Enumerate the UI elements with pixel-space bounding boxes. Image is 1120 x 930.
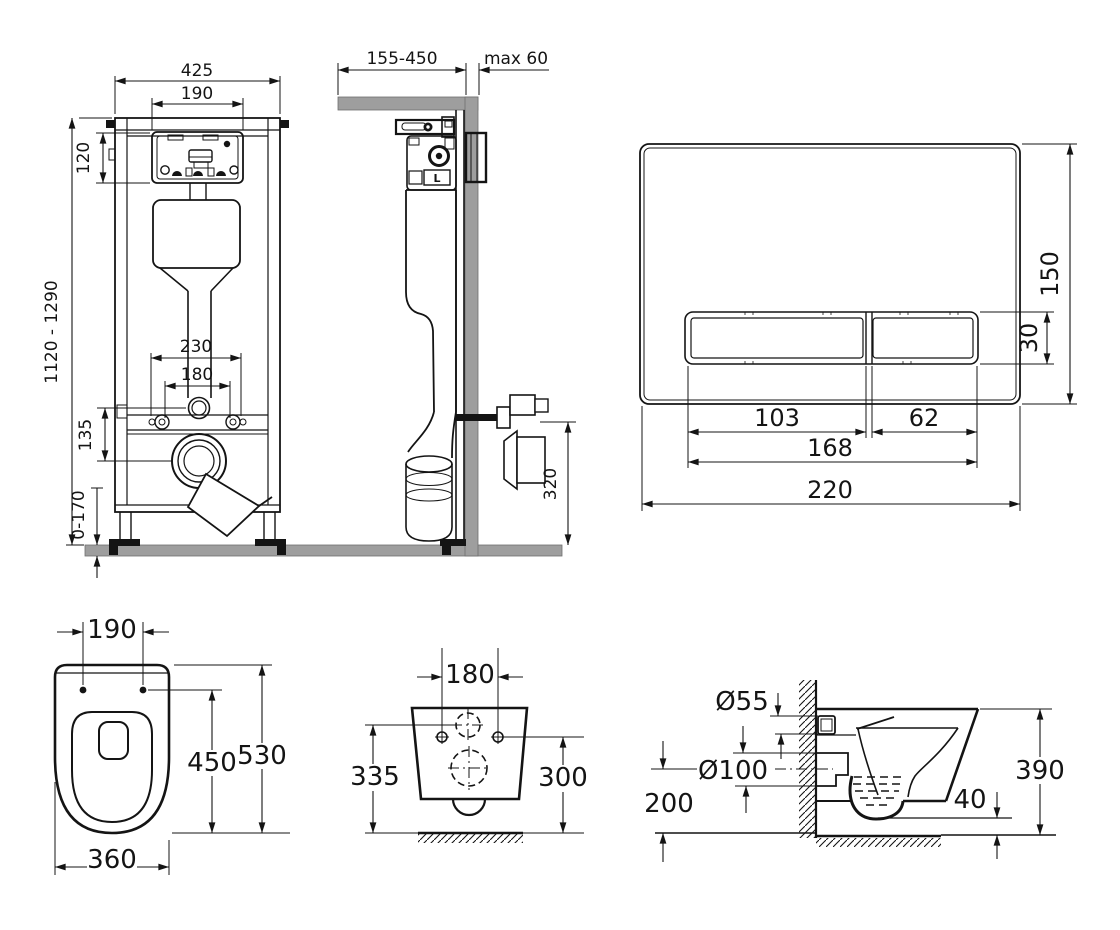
inlet-pipe <box>456 414 497 421</box>
dim-bottom-gap: 40 <box>953 785 986 815</box>
top-fixing-slab <box>338 97 478 110</box>
dim-outlet-diameter: Ø100 <box>698 756 768 786</box>
dim-bowl-width: 360 <box>87 845 137 875</box>
dim-frame-width: 425 <box>181 61 213 81</box>
fixing-bolts <box>149 415 246 429</box>
outlet-connector <box>504 431 517 489</box>
dim-outlet-axis-height: 200 <box>644 789 694 819</box>
dim-opening-height: 120 <box>74 142 94 174</box>
flush-buttons <box>685 312 978 364</box>
seat-fixing-left <box>80 687 87 694</box>
service-opening <box>152 132 243 183</box>
frame-outline <box>115 118 280 512</box>
dim-finish-max: max 60 <box>484 49 548 69</box>
frame-rail <box>456 110 464 540</box>
drain-trap <box>406 456 452 541</box>
dim-fixing-outer: 230 <box>180 337 212 357</box>
dim-rear-fixing-width: 180 <box>445 660 495 690</box>
dim-bowl-fixing-width: 190 <box>87 615 137 645</box>
dim-fixing-inner: 180 <box>181 365 213 385</box>
bowl-top-view: 190 450 530 360 <box>55 615 290 875</box>
dim-inlet-diameter: Ø55 <box>715 687 769 717</box>
top-bracket <box>396 117 454 137</box>
dim-frame-height-range: 1120 - 1290 <box>42 280 62 383</box>
wall-anchor-right <box>280 120 289 128</box>
dim-button-height: 30 <box>1015 323 1043 354</box>
flush-inlet-hole <box>99 722 128 759</box>
dim-connection-height: 320 <box>541 468 561 500</box>
valve-mark-label: L <box>433 172 440 185</box>
technical-drawing-page: 425 190 1120 - 1290 120 230 180 135 0-17… <box>0 0 1120 930</box>
cistern-side: L <box>406 136 456 458</box>
flush-plate <box>640 144 1020 404</box>
water-level <box>853 777 902 805</box>
frame-side-view: L 155-450 <box>338 49 576 556</box>
dim-outlet-offset: 135 <box>76 419 96 451</box>
dim-buttons-width: 168 <box>807 434 853 462</box>
waste-outlet <box>172 434 272 536</box>
outlet-hole-rear <box>448 746 490 790</box>
bowl-rear-view: 180 335 300 <box>350 648 589 843</box>
frame-side-foot <box>440 539 466 546</box>
flush-plate-dimensions: 150 30 103 62 168 220 <box>642 144 1077 511</box>
bowl-top-dimensions: 190 450 530 360 <box>55 615 290 875</box>
dim-rear-height-left: 335 <box>350 762 400 792</box>
dim-bowl-depth: 530 <box>237 741 287 771</box>
dim-plate-height: 150 <box>1036 251 1064 297</box>
dim-button-large-width: 103 <box>754 404 800 432</box>
wall-anchor-left <box>106 120 115 128</box>
dim-button-small-width: 62 <box>909 404 940 432</box>
dim-rear-height-right: 300 <box>538 763 588 793</box>
bowl-side-view: Ø55 Ø100 200 40 390 <box>644 680 1065 862</box>
dim-plate-width: 220 <box>807 476 853 504</box>
inlet-hole-rear <box>451 708 485 742</box>
flush-button-small <box>873 318 973 358</box>
flush-button-large <box>691 318 863 358</box>
floor-slab <box>85 545 562 556</box>
frame-front-view: 425 190 1120 - 1290 120 230 180 135 0-17… <box>42 61 289 578</box>
dim-bowl-height: 390 <box>1015 756 1065 786</box>
bowl-rear-dimensions: 180 335 300 <box>350 648 589 833</box>
wall-hatch <box>799 680 816 838</box>
dim-depth-range: 155-450 <box>366 49 437 69</box>
seat-fixing-right <box>140 687 147 694</box>
seat-opening <box>72 712 152 822</box>
dim-opening-width: 190 <box>181 84 213 104</box>
flush-plate-view: 150 30 103 62 168 220 <box>640 144 1077 511</box>
dim-foot-adjust: 0-170 <box>69 490 89 539</box>
drawing-canvas: 425 190 1120 - 1290 120 230 180 135 0-17… <box>0 0 1120 930</box>
dim-bowl-inner-depth: 450 <box>187 748 237 778</box>
frame-side-dimensions: 155-450 max 60 320 <box>338 49 576 545</box>
